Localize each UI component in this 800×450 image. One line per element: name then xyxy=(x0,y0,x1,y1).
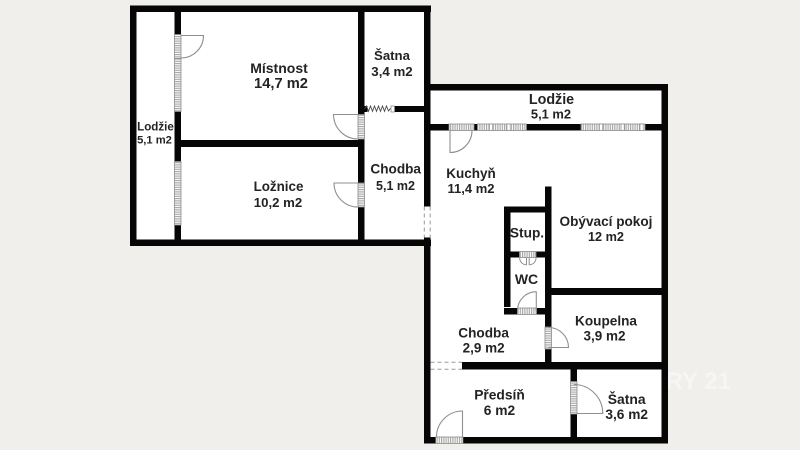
svg-text:14,7 m2: 14,7 m2 xyxy=(254,76,308,92)
svg-text:3,9 m2: 3,9 m2 xyxy=(583,329,625,344)
svg-text:Obývací pokoj: Obývací pokoj xyxy=(560,214,653,229)
svg-text:5,1 m2: 5,1 m2 xyxy=(137,135,172,147)
svg-text:Kuchyň: Kuchyň xyxy=(446,166,496,181)
svg-text:5,1 m2: 5,1 m2 xyxy=(531,107,571,122)
svg-text:Chodba: Chodba xyxy=(458,326,509,341)
svg-text:Lodžie: Lodžie xyxy=(137,121,174,134)
svg-text:5,1 m2: 5,1 m2 xyxy=(376,179,415,193)
svg-text:Předsíň: Předsíň xyxy=(474,388,525,403)
svg-text:2,9 m2: 2,9 m2 xyxy=(463,341,505,356)
svg-text:12 m2: 12 m2 xyxy=(588,230,624,244)
svg-text:6 m2: 6 m2 xyxy=(484,403,516,418)
svg-text:3,6 m2: 3,6 m2 xyxy=(605,407,648,422)
svg-text:Chodba: Chodba xyxy=(370,162,421,177)
svg-text:Ložnice: Ložnice xyxy=(254,179,304,194)
svg-text:Šatna: Šatna xyxy=(608,390,646,407)
svg-text:Stup.: Stup. xyxy=(510,226,544,241)
svg-text:10,2 m2: 10,2 m2 xyxy=(254,195,302,210)
svg-text:11,4 m2: 11,4 m2 xyxy=(448,181,495,196)
svg-text:Místnost: Místnost xyxy=(250,60,308,76)
svg-text:Koupelna: Koupelna xyxy=(575,314,637,329)
svg-text:Šatna: Šatna xyxy=(374,48,411,63)
svg-text:WC: WC xyxy=(515,271,538,287)
svg-text:3,4 m2: 3,4 m2 xyxy=(371,64,412,79)
